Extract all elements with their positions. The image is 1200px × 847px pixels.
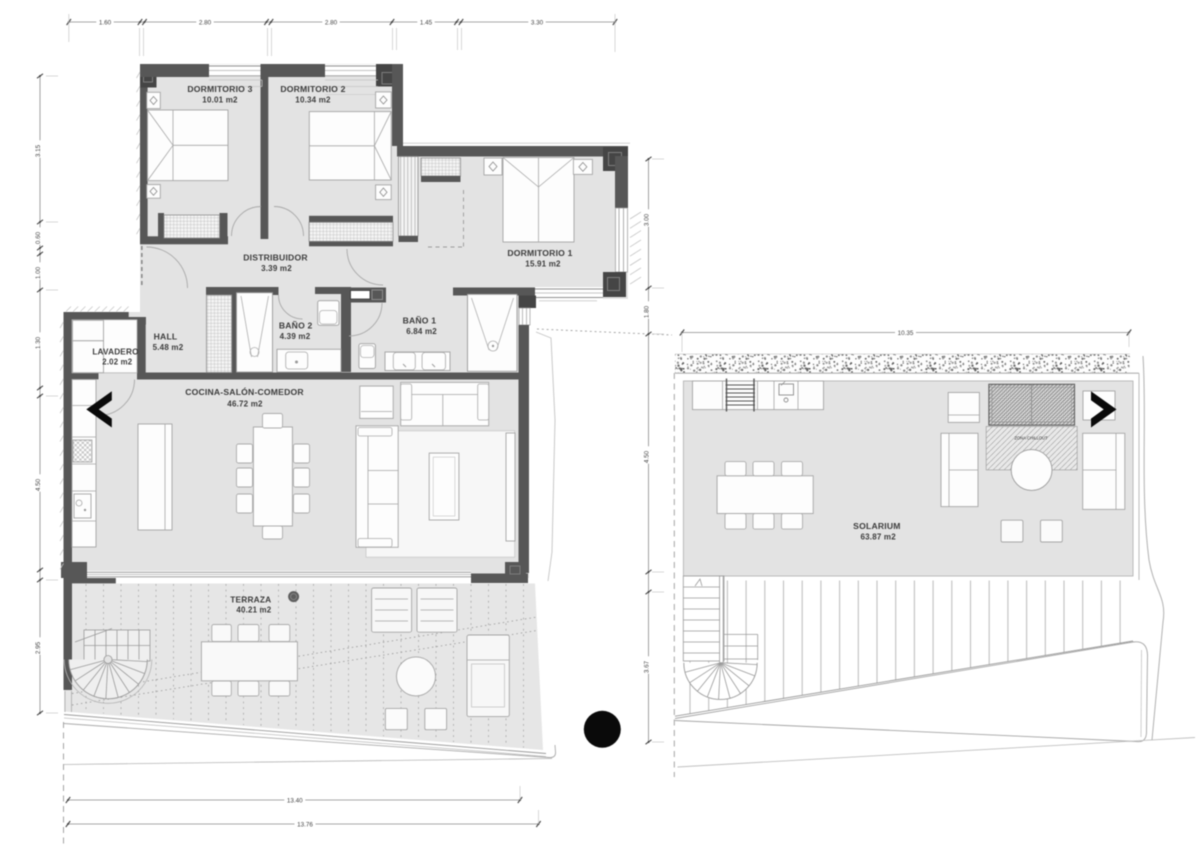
svg-text:2.02 m2: 2.02 m2 (102, 358, 132, 367)
svg-text:15.91 m2: 15.91 m2 (525, 260, 561, 269)
svg-text:DORMITORIO 3: DORMITORIO 3 (187, 84, 252, 94)
svg-text:3.15: 3.15 (35, 144, 42, 157)
svg-text:1.80: 1.80 (644, 305, 651, 318)
svg-text:1.45: 1.45 (420, 19, 433, 26)
svg-text:HALL: HALL (154, 332, 178, 342)
svg-text:1.00: 1.00 (35, 266, 42, 279)
svg-text:DISTRIBUIDOR: DISTRIBUIDOR (243, 253, 308, 263)
svg-text:4.50: 4.50 (35, 478, 42, 491)
svg-text:13.76: 13.76 (297, 821, 313, 828)
svg-text:3.39 m2: 3.39 m2 (261, 264, 292, 273)
svg-text:40.21 m2: 40.21 m2 (236, 606, 271, 615)
svg-text:DORMITORIO 2: DORMITORIO 2 (280, 84, 345, 94)
svg-text:10.35: 10.35 (898, 330, 914, 337)
svg-text:3.67: 3.67 (644, 660, 651, 673)
svg-text:10.01 m2: 10.01 m2 (202, 96, 238, 105)
svg-text:2.80: 2.80 (325, 19, 338, 26)
svg-text:COCINA-SALÓN-COMEDOR: COCINA-SALÓN-COMEDOR (185, 386, 304, 397)
svg-text:1.30: 1.30 (35, 336, 42, 349)
svg-text:1.60: 1.60 (99, 19, 112, 26)
svg-text:4.50: 4.50 (644, 450, 651, 463)
svg-text:TERRAZA: TERRAZA (230, 595, 271, 605)
svg-text:6.84 m2: 6.84 m2 (406, 327, 437, 336)
svg-text:3.30: 3.30 (531, 19, 544, 26)
svg-text:2.95: 2.95 (35, 641, 42, 654)
svg-text:0.60: 0.60 (35, 231, 42, 244)
svg-text:BAÑO 1: BAÑO 1 (403, 316, 437, 326)
svg-text:LAVADERO: LAVADERO (92, 347, 139, 356)
svg-text:DORMITORIO 1: DORMITORIO 1 (507, 248, 572, 258)
svg-text:4.39 m2: 4.39 m2 (280, 332, 311, 341)
svg-text:SOLARIUM: SOLARIUM (853, 521, 900, 531)
svg-text:46.72 m2: 46.72 m2 (227, 399, 263, 408)
svg-text:5.48 m2: 5.48 m2 (153, 343, 184, 352)
svg-text:13.40: 13.40 (287, 797, 303, 804)
svg-text:63.87 m2: 63.87 m2 (860, 533, 896, 542)
svg-text:2.80: 2.80 (199, 19, 212, 26)
svg-text:10.34 m2: 10.34 m2 (295, 96, 331, 105)
svg-text:ZONA CHILLOUT: ZONA CHILLOUT (1014, 436, 1048, 441)
svg-text:3.00: 3.00 (644, 213, 651, 226)
svg-text:BAÑO 2: BAÑO 2 (279, 321, 313, 331)
